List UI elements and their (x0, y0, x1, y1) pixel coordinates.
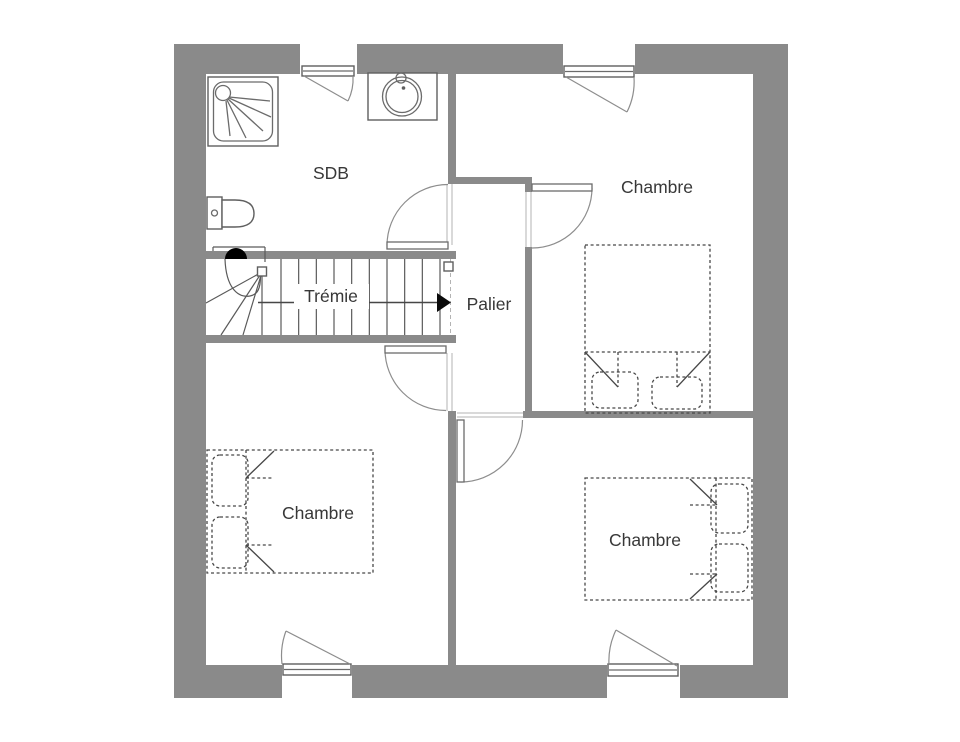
door-sdb (387, 185, 448, 250)
room-label-palier: Palier (467, 294, 512, 314)
doors (385, 184, 592, 482)
wall-sdb-chambre (448, 74, 456, 184)
wall-palier-top (448, 177, 532, 184)
washbasin-icon (368, 73, 437, 120)
room-label-tremie: Trémie (304, 286, 358, 306)
stair-newel-half-disc (225, 248, 247, 259)
doorway-chambre-bottom-right (457, 413, 523, 417)
double-bed-icon-top-right (585, 245, 710, 413)
stair-direction-arrow-icon (437, 293, 451, 312)
doorway-sdb (447, 184, 452, 245)
room-label-chambre-bottom-left: Chambre (282, 503, 354, 523)
doorway-chambre-bottom-left (447, 353, 452, 411)
room-label-chambre-top-right: Chambre (621, 177, 693, 197)
window-top-right (564, 66, 634, 112)
window-bottom-right (608, 630, 678, 676)
stair-winders (206, 247, 265, 335)
floor-plan: SDB Chambre Trémie Palier Chambre Chambr… (0, 0, 960, 742)
shower-tray-icon (208, 77, 278, 146)
room-label-chambre-bottom-right: Chambre (609, 530, 681, 550)
room-label-sdb: SDB (313, 163, 349, 183)
wall-stair-bottom (206, 335, 456, 343)
toilet-icon (207, 197, 254, 229)
window-top-left (302, 66, 354, 101)
door-chambre-top-right (532, 184, 592, 248)
stair-post-right (444, 262, 453, 271)
stair-post-left (258, 267, 267, 276)
floor-plan-page: SDB Chambre Trémie Palier Chambre Chambr… (0, 0, 960, 742)
wall-palier-right-stub (525, 184, 532, 192)
wall-palier-left-lower (448, 411, 456, 665)
door-chambre-bottom-right (457, 420, 523, 482)
window-bottom-left (282, 631, 351, 675)
door-chambre-bottom-left (385, 346, 446, 411)
doorway-chambre-top-right (526, 192, 531, 247)
wall-palier-right (525, 247, 532, 412)
wall-chambres-right-divider (523, 411, 753, 418)
room-labels: SDB Chambre Trémie Palier Chambre Chambr… (282, 163, 693, 550)
